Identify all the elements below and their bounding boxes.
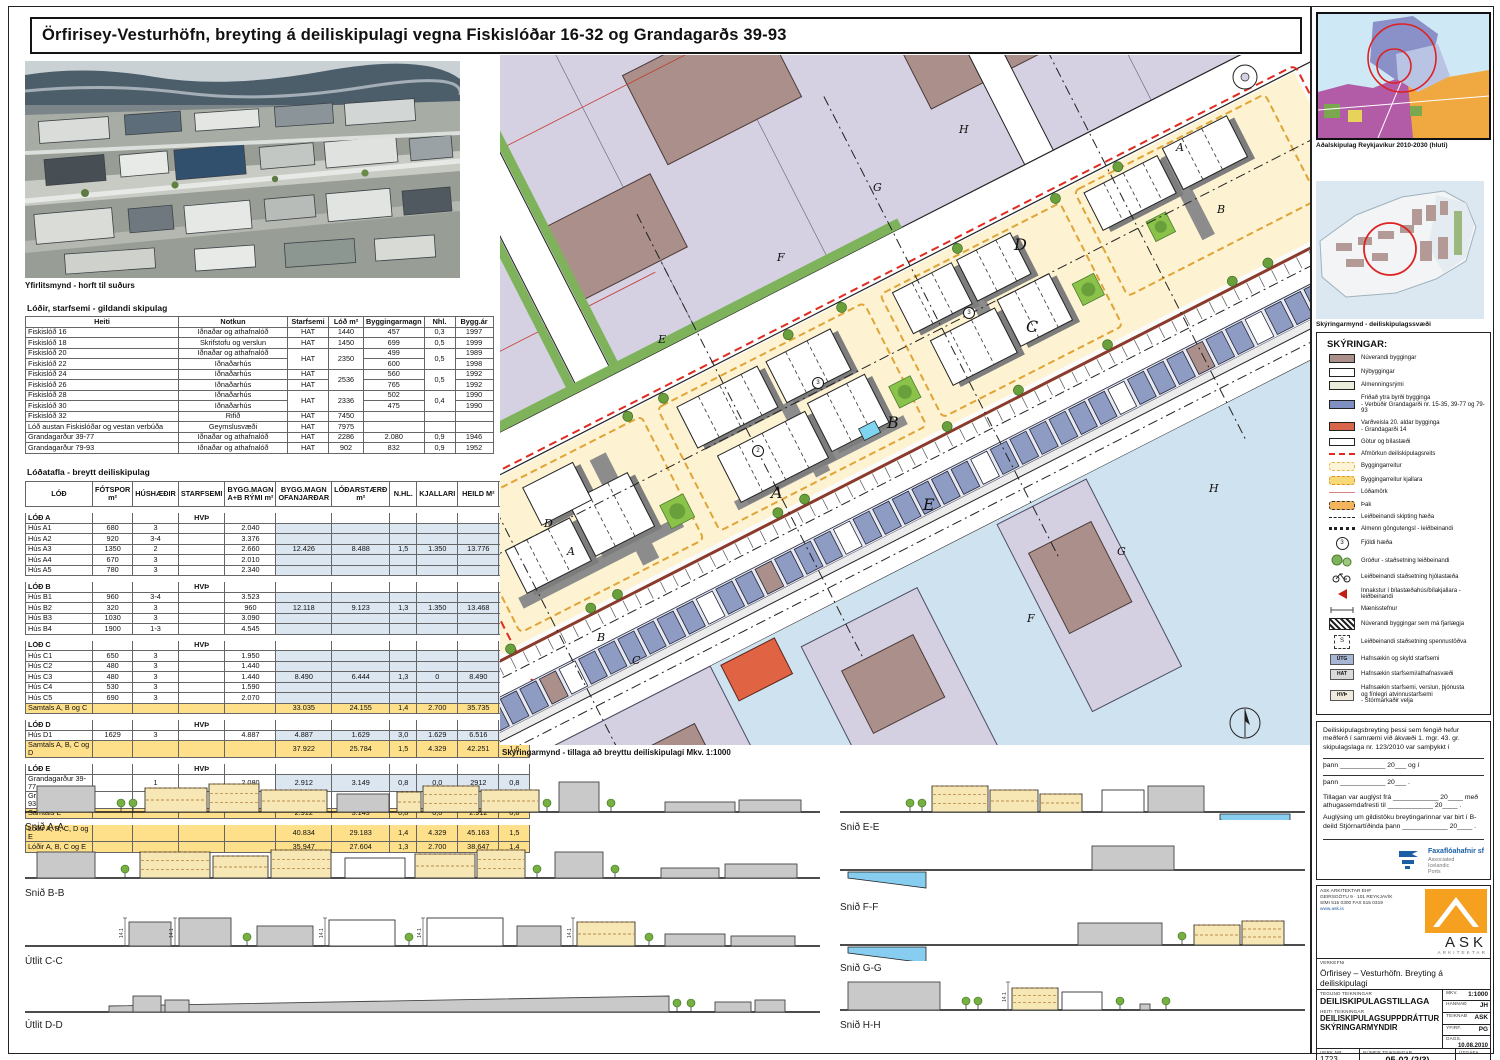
cell <box>133 720 179 731</box>
cell <box>417 682 458 693</box>
cell: 1030 <box>93 613 133 624</box>
section-marker-H: H <box>959 123 969 136</box>
legend-item: SLeiðbeinandi staðsetning spennustöðva <box>1323 635 1486 649</box>
cell: 0 <box>417 672 458 683</box>
table-row: Hús C165031.950 <box>26 651 530 662</box>
legend-item: Leiðbeinandi staðsetning hjólastæða <box>1323 572 1486 583</box>
cell: 832 <box>364 443 425 454</box>
floor-count-badge: 3 <box>812 377 824 389</box>
dags-label: DAGS. <box>1443 1035 1461 1041</box>
cell <box>276 720 332 731</box>
firm-web[interactable]: www.ask.is <box>1320 907 1415 913</box>
cell: Samtals A, B og C <box>26 703 93 714</box>
cell: 699 <box>364 338 425 349</box>
table-row: Hús B19603-43.523 <box>26 592 530 603</box>
legend-label: Götur og bílastæði <box>1361 439 1410 446</box>
cell <box>332 682 390 693</box>
cell: 480 <box>93 672 133 683</box>
legend-item: 3Fjöldi hæða <box>1323 537 1486 550</box>
cell <box>332 513 390 524</box>
cell <box>178 741 225 758</box>
cell: 6.516 <box>458 730 499 741</box>
cell <box>332 582 390 593</box>
cell <box>390 582 417 593</box>
existing-building-swatch <box>1323 354 1361 363</box>
cell: 3 <box>133 672 179 683</box>
sheet-title: Örfirisey-Vesturhöfn, breyting á deilisk… <box>30 17 1302 54</box>
legend-label: Fjöldi hæða <box>1361 540 1392 547</box>
cell: 3,0 <box>390 730 417 741</box>
teiknad-value: ASK <box>1475 1013 1491 1021</box>
cell: 475 <box>364 401 425 412</box>
mkv-value: 1:1000 <box>1468 990 1490 998</box>
table-row: Hús A3135022.66012.4268.4881,51.35013.77… <box>26 544 530 555</box>
height-split-swatch <box>1323 517 1361 518</box>
cell: 1.950 <box>225 651 276 662</box>
cell <box>417 582 458 593</box>
cell: 13.468 <box>458 603 499 614</box>
elevation-left-0 <box>25 772 820 820</box>
cell: 1998 <box>455 359 493 370</box>
cell <box>390 720 417 731</box>
cell <box>276 555 332 566</box>
lot-line-swatch <box>1323 492 1361 493</box>
table-row: Fiskislóð 18Skrifstofu og verslunHAT1450… <box>26 338 494 349</box>
cell <box>417 624 458 635</box>
section-marker-A: A <box>567 545 575 558</box>
section-marker-F: F <box>777 251 785 264</box>
bike-parking-swatch <box>1323 572 1361 583</box>
fax-sub3: Ports <box>1428 869 1441 875</box>
planarea-caption: Skýringarmynd - deiliskipulagssvæði <box>1316 321 1495 328</box>
faxafloahafnir-logo: Faxaflóahafnir sf Associated Icelandic P… <box>1323 848 1484 875</box>
section-label: Snið B-B <box>25 888 64 899</box>
cell <box>178 523 225 534</box>
cell: Skrifstofu og verslun <box>179 338 288 349</box>
section-marker-A: A <box>1176 141 1184 154</box>
col-header: Starfsemi <box>288 317 329 328</box>
aerial-photo-art <box>25 61 460 278</box>
cell <box>332 534 390 545</box>
cell: 8.490 <box>276 672 332 683</box>
cell <box>93 582 133 593</box>
cell: 1.629 <box>417 730 458 741</box>
cell: 3 <box>133 603 179 614</box>
cell <box>455 422 493 433</box>
table-row: Hús C248031.440 <box>26 661 530 672</box>
cell: Iðnaðarhús <box>179 369 288 380</box>
cell: Hús B2 <box>26 603 93 614</box>
cell: 2.080 <box>364 432 425 443</box>
cell <box>424 422 455 433</box>
cell: HAT <box>288 411 329 422</box>
col-header: KJALLARI <box>417 482 458 507</box>
cell: HVÞ <box>178 513 225 524</box>
cell: 1990 <box>455 390 493 401</box>
legend-label: Byggingarreitur kjallara <box>1361 477 1422 484</box>
cell: 1,4 <box>390 703 417 714</box>
cell <box>133 703 179 714</box>
cell: 6.444 <box>332 672 390 683</box>
cell: 1989 <box>455 348 493 359</box>
cell: 1997 <box>455 327 493 338</box>
cell <box>364 422 425 433</box>
table-row: LÓÐ CHVÞ <box>26 640 530 651</box>
cell <box>458 565 499 576</box>
section-marker-G: G <box>873 181 882 194</box>
cell <box>178 592 225 603</box>
col-header: Bygg.ár <box>455 317 493 328</box>
cell: 560 <box>364 369 425 380</box>
svg-text:14.1: 14.1 <box>417 928 423 938</box>
hannad-label: HANNAÐ <box>1443 1000 1467 1006</box>
cell: 3 <box>133 565 179 576</box>
table-row: Hús B2320396012.1189.1231,31.35013.4681,… <box>26 603 530 614</box>
cell: Hús A1 <box>26 523 93 534</box>
cell: 1952 <box>455 443 493 454</box>
table-row: Samtals A, B, C og D37.92225.7841,54.329… <box>26 741 530 758</box>
floor-count-swatch: 3 <box>1323 537 1361 550</box>
cell <box>332 720 390 731</box>
cell <box>332 651 390 662</box>
cell: 2.070 <box>225 693 276 704</box>
cell <box>390 513 417 524</box>
elevation-left-3 <box>25 976 820 1018</box>
cell <box>458 651 499 662</box>
cell <box>93 513 133 524</box>
section-label: Snið H-H <box>840 1020 881 1031</box>
cell <box>390 661 417 672</box>
elevation-right-0 <box>840 772 1305 820</box>
cell: 4.887 <box>276 730 332 741</box>
col-header: Heiti <box>26 317 179 328</box>
legend-item: Núverandi byggingar sem má fjarlægja <box>1323 618 1486 630</box>
cell <box>417 661 458 672</box>
legend-title: SKÝRINGAR: <box>1327 339 1486 350</box>
cell: 9.123 <box>332 603 390 614</box>
cell: Hús B3 <box>26 613 93 624</box>
cell: HAT <box>288 390 329 411</box>
titleblock: ASK ARKITEKTAR EHF GEIRSGÖTU 9 · 101 REY… <box>1316 885 1491 1060</box>
legend-label: Þak <box>1361 502 1371 509</box>
cell: 1.350 <box>417 603 458 614</box>
svg-text:14.1: 14.1 <box>1002 992 1008 1002</box>
section-marker-H: H <box>1209 482 1219 495</box>
cell: Rifið <box>179 411 288 422</box>
legend-label: Hafnsækin og skyld starfsemi <box>1361 656 1439 663</box>
plan-sheet: { "title": "Örfirisey-Vesturhöfn, breyti… <box>0 0 1500 1060</box>
transformer-swatch: S <box>1323 635 1361 649</box>
table-row: Fiskislóð 28IðnaðarhúsHAT23365020,41990 <box>26 390 494 401</box>
tegund-value: DEILISKIPULAGSTILLAGA <box>1317 996 1442 1008</box>
cell: 0,9 <box>424 443 455 454</box>
ridge-direction-swatch <box>1323 606 1361 614</box>
elevation-right-1 <box>840 840 1305 900</box>
cell: 3 <box>133 651 179 662</box>
cell: 1999 <box>455 338 493 349</box>
cell <box>332 592 390 603</box>
cell: Lóð austan Fiskislóðar og vestan verbúða <box>26 422 179 433</box>
cell <box>417 693 458 704</box>
table-row: LÓÐ BHVÞ <box>26 582 530 593</box>
cell: Iðnaðarhús <box>179 401 288 412</box>
cell: 3 <box>133 555 179 566</box>
cell: 2286 <box>329 432 364 443</box>
cell: 320 <box>93 603 133 614</box>
cell <box>390 523 417 534</box>
cell: Hús C3 <box>26 672 93 683</box>
cell: 670 <box>93 555 133 566</box>
cell <box>390 682 417 693</box>
elevation-right-2 <box>840 915 1305 961</box>
legend-label: Lóðamörk <box>1361 489 1388 496</box>
cell: Fiskislóð 30 <box>26 401 179 412</box>
walk-link-swatch <box>1323 527 1361 530</box>
cell <box>225 741 276 758</box>
cell: Geymslusvæði <box>179 422 288 433</box>
sheet-title-text: Örfirisey-Vesturhöfn, breyting á deilisk… <box>42 26 787 45</box>
cell <box>458 693 499 704</box>
cell <box>133 741 179 758</box>
cell: Fiskislóð 26 <box>26 380 179 391</box>
cell: Fiskislóð 32 <box>26 411 179 422</box>
table-row: Hús C569032.070 <box>26 693 530 704</box>
cell: 1.629 <box>332 730 390 741</box>
legend-label: Leiðbeinandi skipting hæða <box>1361 514 1434 521</box>
cell: 2.340 <box>225 565 276 576</box>
legend-item: Núverandi byggingar <box>1323 354 1486 363</box>
cell: 3 <box>133 730 179 741</box>
section-marker-B: B <box>597 631 605 644</box>
cell <box>458 555 499 566</box>
cell: Grandagarður 39-77 <box>26 432 179 443</box>
cell: Hús B4 <box>26 624 93 635</box>
car-entry-swatch <box>1323 589 1361 599</box>
cell: HAT <box>288 443 329 454</box>
plot-label-B: B <box>887 413 899 432</box>
cell: 1,3 <box>390 603 417 614</box>
cell: 2536 <box>329 369 364 390</box>
cell: HVÞ <box>178 582 225 593</box>
cell: 1.590 <box>225 682 276 693</box>
col-header: HÚSHÆÐIR <box>133 482 179 507</box>
cell <box>332 613 390 624</box>
cell: 690 <box>93 693 133 704</box>
cell <box>458 534 499 545</box>
cell: Hús D1 <box>26 730 93 741</box>
cell: 457 <box>364 327 425 338</box>
cell <box>458 640 499 651</box>
table-row: Samtals A, B og C33.03524.1551,42.70035.… <box>26 703 530 714</box>
cell <box>417 640 458 651</box>
cell: 42.251 <box>458 741 499 758</box>
cell: 499 <box>364 348 425 359</box>
ports-flag-icon <box>1398 848 1424 870</box>
cell <box>458 523 499 534</box>
cell: Fiskislóð 22 <box>26 359 179 370</box>
cell: HAT <box>288 369 329 380</box>
cell: 1350 <box>93 544 133 555</box>
legend-label: Núverandi byggingar sem má fjarlægja <box>1361 621 1464 628</box>
cell: Fiskislóð 20 <box>26 348 179 359</box>
cell <box>332 555 390 566</box>
table-row: Grandagarður 39-77Iðnaðar og athafnalóðH… <box>26 432 494 443</box>
cell: 2336 <box>329 390 364 411</box>
basement-plot-swatch <box>1323 476 1361 485</box>
cell <box>458 592 499 603</box>
cell <box>178 661 225 672</box>
cell <box>332 565 390 576</box>
building-plot-swatch <box>1323 462 1361 471</box>
roof-swatch <box>1323 501 1361 510</box>
section-marker-C: C <box>632 654 640 667</box>
cell: LÓÐ D <box>26 720 93 731</box>
cell: 1,5 <box>390 741 417 758</box>
cell <box>178 730 225 741</box>
table-row: Hús A168032.040 <box>26 523 530 534</box>
cell <box>458 682 499 693</box>
cell: 960 <box>93 592 133 603</box>
zone-utg-swatch: ÚTG <box>1323 654 1361 665</box>
ask-logo-icon <box>1425 889 1487 933</box>
cell: 37.922 <box>276 741 332 758</box>
cell: 1990 <box>455 401 493 412</box>
cell: Iðnaðarhús <box>179 390 288 401</box>
cell <box>178 603 225 614</box>
cell <box>455 411 493 422</box>
cell: Iðnaðarhús <box>179 359 288 370</box>
vegetation-swatch <box>1323 554 1361 567</box>
svg-text:14.1: 14.1 <box>119 928 125 938</box>
cell: Fiskislóð 16 <box>26 327 179 338</box>
cell: 13.776 <box>458 544 499 555</box>
cell <box>133 513 179 524</box>
table-row: Fiskislóð 30Iðnaðarhús4751990 <box>26 401 494 412</box>
cell <box>276 640 332 651</box>
cell: 8.490 <box>458 672 499 683</box>
section-marker-D: D <box>544 517 553 530</box>
plot-label-C: C <box>1026 317 1038 336</box>
cell <box>178 693 225 704</box>
cell: HAT <box>288 422 329 433</box>
cell: 765 <box>364 380 425 391</box>
verkefni-value: Örfirisey – Vesturhöfn. Breyting á deili… <box>1317 965 1490 991</box>
cell <box>276 592 332 603</box>
planarea-thumbnail <box>1316 181 1484 319</box>
table-row: Hús B419001-34.545 <box>26 624 530 635</box>
cell <box>178 703 225 714</box>
svg-text:14.1: 14.1 <box>319 928 325 938</box>
cell: 12.426 <box>276 544 332 555</box>
legend-label: Leiðbeinandi staðsetning hjólastæða <box>1361 574 1458 581</box>
legend-label: Friðað ytra byrði bygginga - Verbúðir Gr… <box>1361 395 1486 415</box>
cell <box>458 661 499 672</box>
cell <box>225 582 276 593</box>
cell <box>417 651 458 662</box>
cell: 7450 <box>329 411 364 422</box>
preserved-building-swatch <box>1323 422 1361 431</box>
cell: 25.784 <box>332 741 390 758</box>
zone-hat-swatch: HAT <box>1323 669 1361 680</box>
yfirf-value: PG <box>1479 1025 1490 1033</box>
cell <box>332 640 390 651</box>
cell <box>276 651 332 662</box>
cell: Hús C4 <box>26 682 93 693</box>
cell: 1,3 <box>390 672 417 683</box>
col-header: N.HL. <box>390 482 417 507</box>
cell <box>332 624 390 635</box>
legend-label: Afmörkun deiliskipulagsreits <box>1361 451 1435 458</box>
legend-label: Almenn göngutengsl - leiðbeinandi <box>1361 526 1453 533</box>
legend-label: Byggingarreitur <box>1361 463 1402 470</box>
cell <box>458 613 499 624</box>
cell <box>93 703 133 714</box>
fax-name: Faxaflóahafnir sf <box>1428 848 1484 857</box>
cell: 600 <box>364 359 425 370</box>
cell <box>178 544 225 555</box>
cell: 4.545 <box>225 624 276 635</box>
cell: Hús C5 <box>26 693 93 704</box>
plan-boundary-swatch <box>1323 453 1361 455</box>
cell: 530 <box>93 682 133 693</box>
col-header: BYGG.MAGN OFANJARÐAR <box>276 482 332 507</box>
col-header: Notkun <box>179 317 288 328</box>
cell: 3 <box>133 693 179 704</box>
legend-label: Hafnsækin starfsemi, verslun, þjónusta o… <box>1361 685 1464 705</box>
table-row: Hús A29203-43.376 <box>26 534 530 545</box>
cell <box>276 513 332 524</box>
col-header: BYGG.MAGN A+B RÝMI m² <box>225 482 276 507</box>
streets-parking-swatch <box>1323 438 1361 446</box>
legend-item: Götur og bílastæði <box>1323 438 1486 446</box>
yfirf-label: YFIRF. <box>1443 1024 1461 1030</box>
cell: HAT <box>288 338 329 349</box>
legend-item: Varðveisla 20. aldar bygginga - Grandaga… <box>1323 420 1486 434</box>
col-header: Lóð m² <box>329 317 364 328</box>
cell <box>417 534 458 545</box>
cell: 3 <box>133 682 179 693</box>
cell: 2.010 <box>225 555 276 566</box>
cell: 1992 <box>455 380 493 391</box>
cell <box>178 555 225 566</box>
legend-item: Gróður - staðsetning leiðbeinandi <box>1323 554 1486 567</box>
sidebar-divider <box>1310 6 1312 1054</box>
cell: 650 <box>93 651 133 662</box>
mkv-label: MKV. <box>1443 989 1458 995</box>
cell: 3 <box>133 661 179 672</box>
cell <box>417 523 458 534</box>
cell: 502 <box>364 390 425 401</box>
cell: 480 <box>93 661 133 672</box>
cell <box>417 592 458 603</box>
legend-label: Almenningsrými <box>1361 382 1404 389</box>
legend-item: Almenningsrými <box>1323 381 1486 390</box>
cell <box>390 693 417 704</box>
cell: 12.118 <box>276 603 332 614</box>
cell: HAT <box>288 432 329 443</box>
table-row: Fiskislóð 22Iðnaðarhús6001998 <box>26 359 494 370</box>
table-row: Hús C348031.4408.4906.4441,308.4901,3 <box>26 672 530 683</box>
col-header: LÓÐARSTÆRÐ m² <box>332 482 390 507</box>
section-label: Útlit D-D <box>25 1020 63 1031</box>
table-row: Hús A467032.010 <box>26 555 530 566</box>
cell <box>417 513 458 524</box>
cell: Hús A4 <box>26 555 93 566</box>
ask-logo-sub: ARKITEKTAR <box>1415 950 1487 955</box>
cell: 3.090 <box>225 613 276 624</box>
table-row: Grandagarður 79-93Iðnaðar og athafnalóðH… <box>26 443 494 454</box>
cell: Fiskislóð 18 <box>26 338 179 349</box>
